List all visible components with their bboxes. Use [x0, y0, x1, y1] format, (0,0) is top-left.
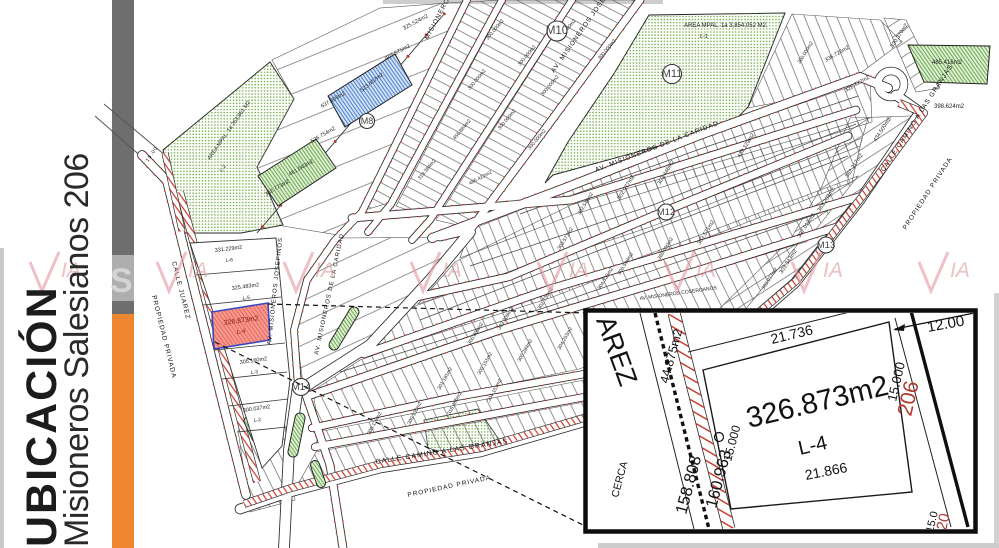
svg-text:IA: IA — [188, 259, 208, 282]
svg-text:L-6: L-6 — [226, 257, 234, 264]
svg-text:AREA MPAL. 1a 3,854,052 M2.: AREA MPAL. 1a 3,854,052 M2. — [684, 23, 768, 29]
svg-text:IA: IA — [442, 259, 462, 282]
svg-text:L-3: L-3 — [250, 369, 258, 376]
svg-text:L-1: L-1 — [700, 34, 708, 40]
svg-text:L-5: L-5 — [242, 295, 250, 302]
svg-text:M11: M11 — [662, 68, 683, 80]
svg-text:IA: IA — [696, 259, 716, 282]
svg-text:M13: M13 — [817, 240, 835, 251]
svg-text:M10: M10 — [546, 25, 568, 37]
svg-text:IA: IA — [569, 259, 589, 282]
svg-text:IA: IA — [315, 259, 335, 282]
svg-text:IA: IA — [950, 259, 970, 282]
svg-text:M12: M12 — [657, 207, 675, 218]
svg-text:Misioneros Salesianos 206: Misioneros Salesianos 206 — [58, 153, 96, 547]
svg-text:IA: IA — [823, 259, 843, 282]
svg-text:L-2: L-2 — [253, 417, 261, 424]
svg-text:M14: M14 — [291, 382, 311, 393]
svg-text:M8: M8 — [361, 116, 374, 126]
svg-text:398.624m2: 398.624m2 — [934, 104, 965, 110]
svg-text:S: S — [110, 262, 133, 300]
